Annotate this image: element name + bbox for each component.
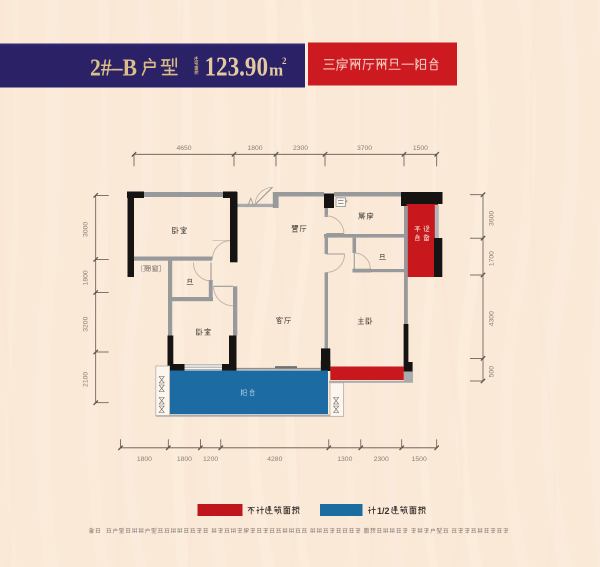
svg-text:4300: 4300 (489, 311, 496, 326)
svg-text:123.90: 123.90 (205, 52, 269, 82)
svg-text:1800: 1800 (83, 270, 90, 285)
svg-text:1500: 1500 (413, 145, 428, 152)
svg-text:1800: 1800 (177, 456, 192, 463)
svg-text:4280: 4280 (267, 456, 282, 463)
svg-text:2#–B: 2#–B (90, 55, 137, 82)
svg-text:3700: 3700 (357, 145, 372, 152)
svg-text:500: 500 (489, 366, 496, 378)
svg-text:1500: 1500 (412, 456, 427, 463)
svg-text:3000: 3000 (83, 222, 90, 237)
svg-text:2: 2 (282, 56, 287, 66)
svg-text:1/2: 1/2 (377, 506, 390, 516)
svg-text:1800: 1800 (247, 145, 262, 152)
svg-text:1800: 1800 (137, 456, 152, 463)
svg-text:2100: 2100 (83, 372, 90, 387)
svg-text:4650: 4650 (176, 145, 191, 152)
svg-text:3600: 3600 (489, 211, 496, 226)
svg-text:2300: 2300 (293, 145, 308, 152)
svg-text:1200: 1200 (203, 456, 218, 463)
svg-text:1300: 1300 (337, 456, 352, 463)
svg-text:3200: 3200 (83, 316, 90, 331)
svg-text:1700: 1700 (489, 251, 496, 266)
svg-text:2300: 2300 (374, 456, 389, 463)
